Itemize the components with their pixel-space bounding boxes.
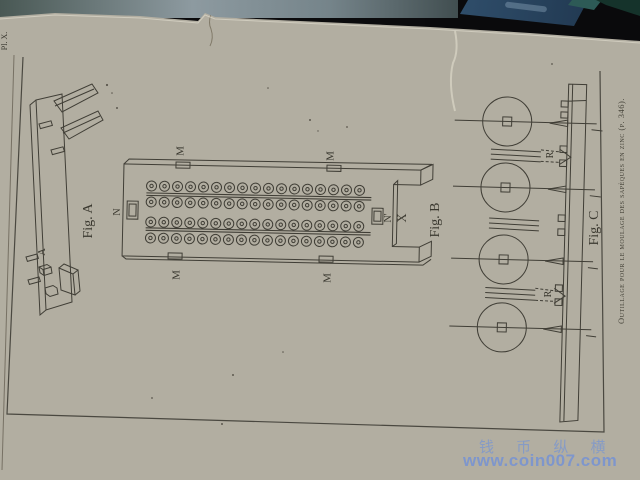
part-label-n-prime: N'	[384, 213, 394, 222]
part-label-x: X	[396, 213, 409, 222]
fig-a-label: Fig. A	[82, 203, 96, 238]
plate-engraving	[0, 0, 640, 480]
connector-lines	[485, 149, 541, 300]
fig-a-drawing	[26, 84, 103, 315]
plate-caption: Outillage pour le moulage des sapèques e…	[617, 98, 626, 324]
part-label-m-top-right: M	[326, 151, 337, 161]
plate-number: Pl. X.	[1, 32, 9, 50]
part-label-m-bottom-left: M	[172, 270, 183, 280]
part-label-a: A	[38, 248, 49, 256]
part-label-n: N	[113, 208, 123, 215]
page-fold-line	[2, 55, 14, 470]
part-label-r2: R	[544, 291, 554, 298]
photo-of-book-plate: Pl. X. Outillage pour le moulage des sap…	[0, 0, 640, 480]
paper-crease	[451, 31, 457, 111]
fig-b-label: Fig. B	[429, 202, 443, 237]
fig-b-drawing	[122, 158, 433, 265]
part-label-r1: R	[546, 152, 556, 159]
book-page: Pl. X. Outillage pour le moulage des sap…	[0, 0, 640, 480]
chevron-r1	[560, 149, 571, 164]
plate-frame	[7, 57, 604, 432]
coin-cavity-grid	[145, 181, 364, 248]
fig-c-drawing	[447, 81, 604, 423]
paper-specks	[106, 63, 553, 425]
watermark-url: www.coin007.com	[463, 451, 617, 471]
fig-c-label: Fig. C	[588, 210, 602, 245]
part-label-m-top-left: M	[176, 146, 187, 156]
part-label-m-bottom-right: M	[323, 273, 334, 283]
paper-crack	[210, 14, 213, 46]
mould-side-view-strip	[541, 84, 604, 423]
